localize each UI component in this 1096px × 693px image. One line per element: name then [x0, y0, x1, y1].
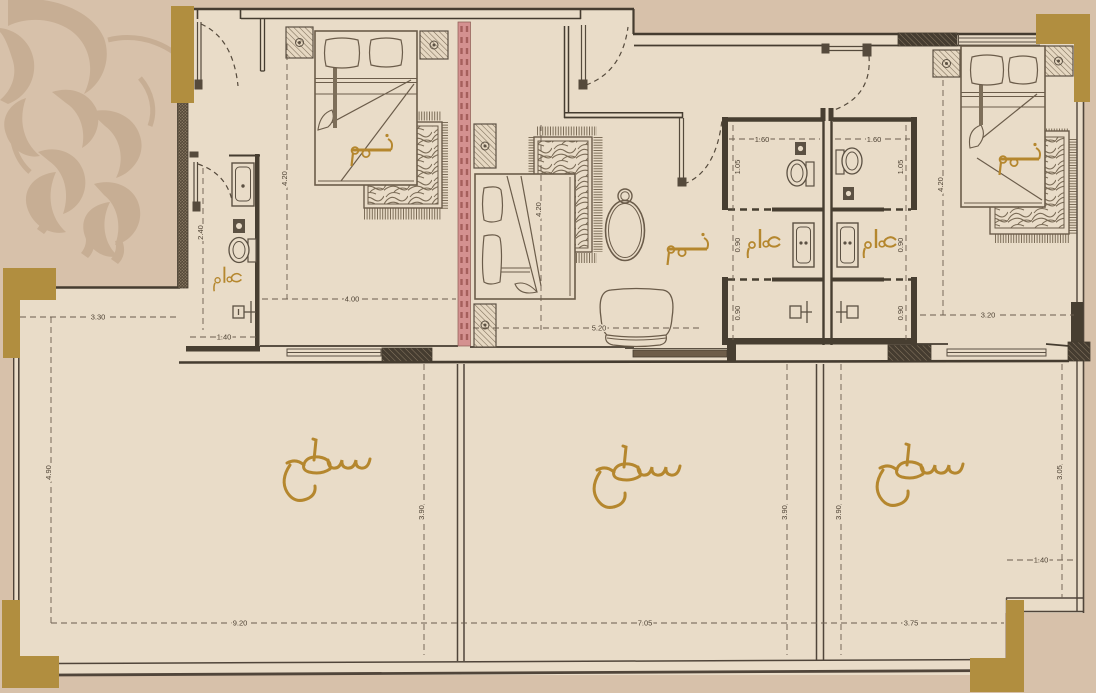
svg-text:9.20: 9.20 — [233, 619, 248, 628]
svg-text:0.90: 0.90 — [733, 306, 742, 321]
svg-text:2.40: 2.40 — [196, 225, 205, 240]
svg-text:1.05: 1.05 — [896, 160, 905, 175]
svg-text:1.05: 1.05 — [733, 160, 742, 175]
svg-text:1.40: 1.40 — [217, 333, 232, 342]
svg-text:1.60: 1.60 — [867, 135, 882, 144]
svg-text:4.20: 4.20 — [936, 177, 945, 192]
svg-text:0.90: 0.90 — [896, 238, 905, 253]
svg-text:4.00: 4.00 — [345, 295, 360, 304]
svg-text:3.20: 3.20 — [981, 311, 996, 320]
svg-text:3.05: 3.05 — [1055, 465, 1064, 480]
svg-text:1.40: 1.40 — [1034, 556, 1049, 565]
svg-text:0.90: 0.90 — [733, 238, 742, 253]
svg-text:3.90: 3.90 — [834, 505, 843, 520]
svg-text:0.90: 0.90 — [896, 306, 905, 321]
svg-text:3.90: 3.90 — [780, 505, 789, 520]
svg-text:7.05: 7.05 — [638, 619, 653, 628]
svg-text:3.75: 3.75 — [904, 619, 919, 628]
svg-text:3.30: 3.30 — [91, 313, 106, 322]
svg-text:1.60: 1.60 — [755, 135, 770, 144]
svg-text:3.90: 3.90 — [417, 505, 426, 520]
svg-text:4.20: 4.20 — [280, 171, 289, 186]
svg-text:4.20: 4.20 — [534, 202, 543, 217]
svg-text:4.90: 4.90 — [44, 465, 53, 480]
svg-text:5.20: 5.20 — [592, 324, 607, 333]
